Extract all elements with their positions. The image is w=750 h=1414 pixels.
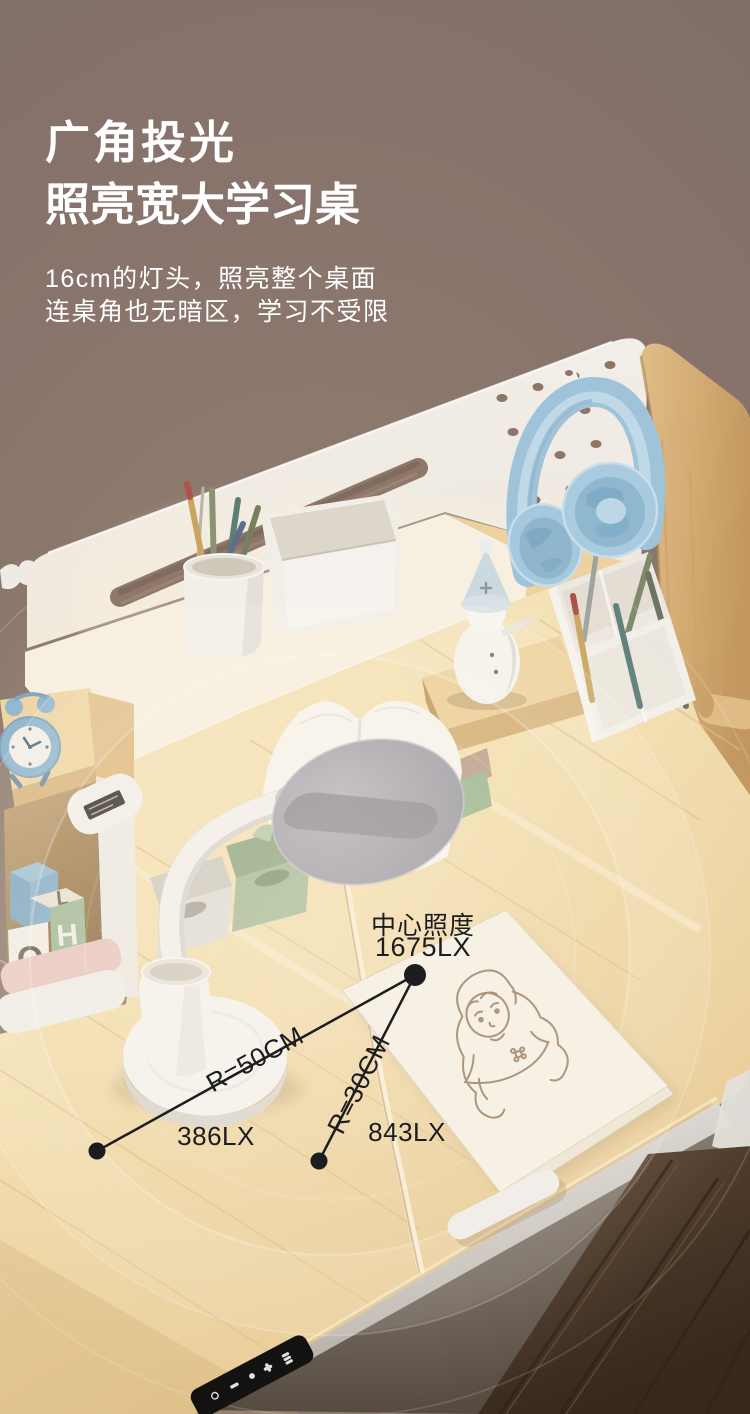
title-line-2: 照亮宽大学习桌 bbox=[45, 174, 390, 236]
illuminance-843lx: 843LX bbox=[332, 1117, 482, 1148]
headphone-right-cup bbox=[563, 463, 657, 557]
center-illuminance-value: 1675LX bbox=[348, 932, 498, 963]
r30-measure-dot bbox=[311, 1153, 328, 1170]
title-line-1: 广角投光 bbox=[45, 112, 390, 174]
headline-block: 广角投光 照亮宽大学习桌 16cm的灯头，照亮整个桌面 连桌角也无暗区，学习不受… bbox=[45, 112, 390, 329]
product-detail-image: L O H bbox=[0, 0, 750, 1414]
subtitle-line-2: 连桌角也无暗区，学习不受限 bbox=[45, 296, 390, 329]
subtitle-line-1: 16cm的灯头，照亮整个桌面 bbox=[45, 263, 390, 296]
r50-measure-dot bbox=[89, 1143, 106, 1160]
illuminance-386lx: 386LX bbox=[141, 1121, 291, 1152]
center-measure-dot bbox=[404, 964, 426, 986]
